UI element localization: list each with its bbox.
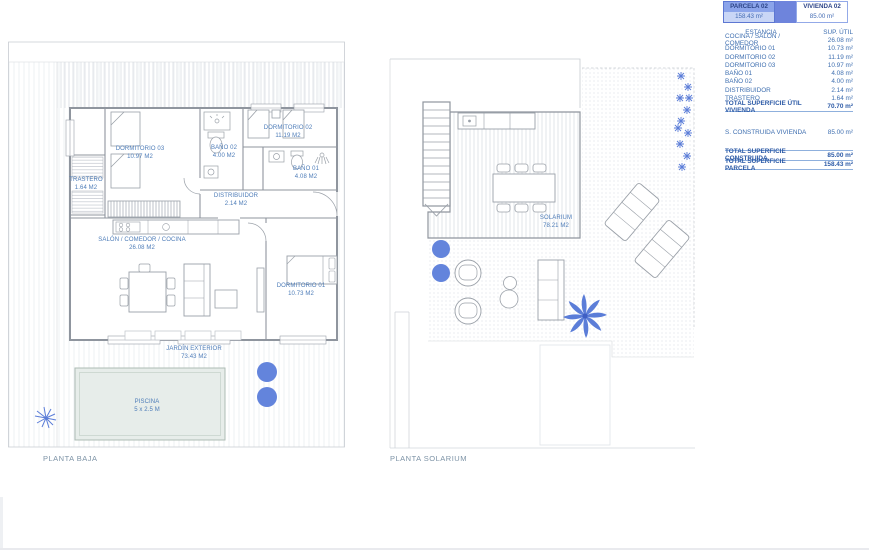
room-name: DISTRIBUIDOR: [214, 192, 258, 200]
room-label-trastero: TRASTERO 1.64 M2: [69, 176, 102, 192]
col-sup-util: SUP. ÚTIL: [811, 29, 853, 36]
room-label-jardin: JARDÍN EXTERIOR 73.43 M2: [166, 345, 222, 361]
room-area: 73.43 M2: [166, 353, 222, 361]
room-name: JARDÍN EXTERIOR: [166, 345, 222, 353]
plot-boundary: [390, 59, 580, 108]
table-row: DORMITORIO 0310.97 m²: [725, 61, 853, 69]
room-name: SOLARIUM: [540, 214, 572, 222]
room-area: 4.00 M2: [211, 152, 237, 160]
room-name: DORMITORIO 01: [277, 282, 326, 290]
plan-solarium-drawing: [385, 28, 700, 473]
parcela-label: PARCELA 02: [724, 2, 774, 12]
vivienda-label: VIVIENDA 02: [797, 2, 847, 12]
room-area: 10.73 M2: [277, 290, 326, 298]
room-name: DORMITORIO 03: [116, 145, 165, 153]
room-name: BAÑO 01: [293, 165, 319, 173]
roof-outline: [540, 345, 610, 445]
header-divider: [775, 1, 796, 23]
tv-bench: [257, 268, 264, 312]
room-label-bano-01: BAÑO 01 4.08 M2: [293, 165, 319, 181]
areas-sidebar: PARCELA 02 158.43 m² VIVIENDA 02 85.00 m…: [700, 0, 869, 550]
plan-title-baja: PLANTA BAJA: [43, 454, 98, 463]
room-area: 10.97 M2: [116, 153, 165, 161]
side-table: [500, 290, 518, 308]
table-row: COCINA / SALÓN / COMEDOR26.08 m²: [725, 36, 853, 44]
parcela-value: 158.43 m²: [724, 12, 774, 22]
staircase: [423, 102, 450, 216]
total-util-row: TOTAL SUPERFICIE ÚTIL VIVIENDA70.70 m²: [725, 103, 853, 112]
room-area: 26.08 M2: [98, 244, 185, 252]
table-row: DISTRIBUIDOR2.14 m²: [725, 86, 853, 94]
room-label-salon: SALÓN / COMEDOR / COCINA 26.08 M2: [98, 236, 185, 252]
room-name: DORMITORIO 02: [264, 124, 313, 132]
plan-sheet: DORMITORIO 03 10.97 M2 BAÑO 02 4.00 M2 D…: [0, 0, 869, 550]
room-name: TRASTERO: [69, 176, 102, 184]
plan-title-solarium: PLANTA SOLARIUM: [390, 454, 467, 463]
room-label-dormitorio-01: DORMITORIO 01 10.73 M2: [277, 282, 326, 298]
vivienda-value: 85.00 m²: [797, 12, 847, 22]
room-name: SALÓN / COMEDOR / COCINA: [98, 236, 185, 244]
room-label-distribuidor: DISTRIBUIDOR 2.14 M2: [214, 192, 258, 208]
room-area: 1.64 M2: [69, 184, 102, 192]
room-label-piscina: PISCINA 5 x 2.5 M: [134, 398, 160, 414]
vivienda-tab[interactable]: VIVIENDA 02 85.00 m²: [796, 1, 848, 23]
header-boxes: PARCELA 02 158.43 m² VIVIENDA 02 85.00 m…: [700, 1, 869, 24]
plan-planta-baja: DORMITORIO 03 10.97 M2 BAÑO 02 4.00 M2 D…: [8, 28, 348, 473]
counter: [458, 113, 535, 129]
table-row: DORMITORIO 0211.19 m²: [725, 53, 853, 61]
room-area: 78.21 M2: [540, 222, 572, 230]
room-name: PISCINA: [134, 398, 160, 406]
table-row: BAÑO 024.00 m²: [725, 78, 853, 86]
outdoor-sofa: [538, 260, 564, 320]
room-label-bano-02: BAÑO 02 4.00 M2: [211, 144, 237, 160]
room-area: 5 x 2.5 M: [134, 406, 160, 414]
room-label-solarium: SOLARIUM 78.21 M2: [540, 214, 572, 230]
room-name: BAÑO 02: [211, 144, 237, 152]
coffee-table: [215, 290, 237, 308]
table-row: DORMITORIO 0110.73 m²: [725, 45, 853, 53]
table-row: BAÑO 014.08 m²: [725, 69, 853, 77]
kitchen-counter: [113, 220, 239, 234]
room-area: 4.08 M2: [293, 173, 319, 181]
side-table: [504, 277, 517, 290]
wardrobe: [108, 201, 180, 217]
plan-planta-solarium: SOLARIUM 78.21 M2 PLANTA SOLARIUM: [385, 28, 700, 473]
dining-table: [493, 164, 555, 212]
room-area: 2.14 M2: [214, 200, 258, 208]
total-parcela-row: TOTAL SUPERFICIE PARCELA158.43 m²: [725, 161, 853, 170]
bed-dorm01: [287, 256, 337, 284]
areas-table: ESTANCIA SUP. ÚTIL COCINA / SALÓN / COME…: [725, 28, 853, 170]
side-wall: [395, 312, 409, 448]
construida-row: S. CONSTRUIDA VIVIENDA85.00 m²: [725, 128, 853, 136]
room-label-dormitorio-02: DORMITORIO 02 11.19 M2: [264, 124, 313, 140]
parcela-tab[interactable]: PARCELA 02 158.43 m²: [723, 1, 775, 23]
window-left-edge: [0, 497, 3, 548]
room-label-dormitorio-03: DORMITORIO 03 10.97 M2: [116, 145, 165, 161]
terrace-hatch: [57, 62, 345, 108]
sofa: [184, 264, 210, 316]
room-area: 11.19 M2: [264, 132, 313, 140]
